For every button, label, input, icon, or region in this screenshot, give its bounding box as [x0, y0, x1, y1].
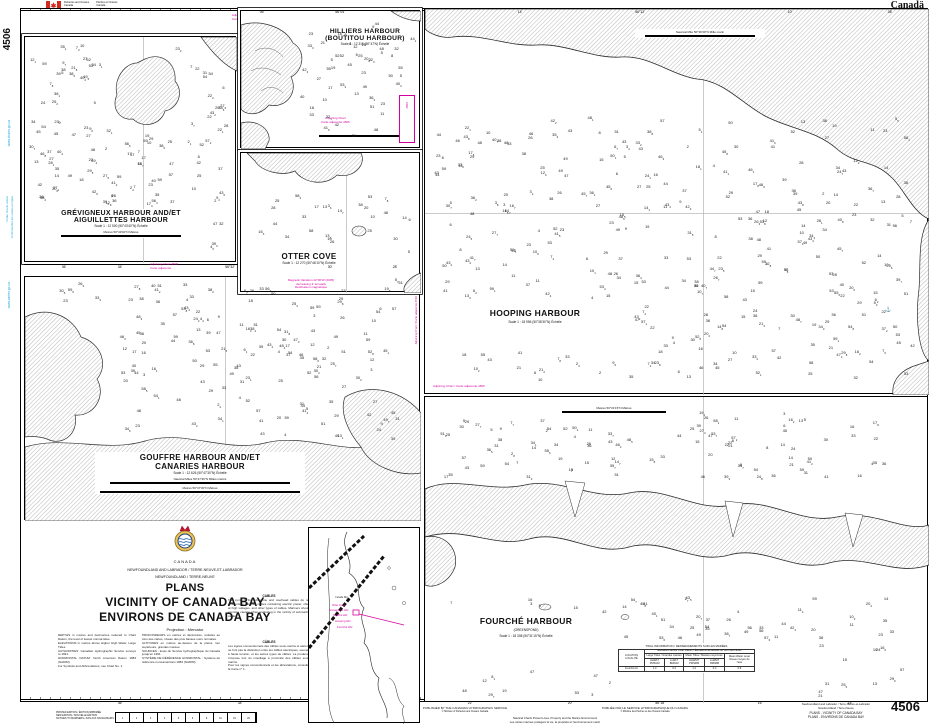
sounding: 53	[896, 333, 900, 337]
side-chart-number: 4506	[2, 28, 13, 50]
sounding: 41	[771, 145, 775, 149]
sounding: 274	[699, 430, 705, 436]
sounding: 13	[475, 267, 479, 271]
sounding: 12	[123, 347, 127, 351]
sounding: 381	[54, 92, 60, 98]
sounding: 53	[904, 372, 908, 376]
sounding: 56	[759, 629, 763, 633]
sounding: 3	[313, 314, 315, 318]
sounding: 27	[728, 358, 732, 362]
sounding: 174	[147, 202, 153, 208]
hooping-scalebar: Nautical Mile 50°36'30"N Mille marin	[635, 29, 765, 38]
sounding: 12	[458, 164, 462, 168]
sounding: 207	[696, 615, 702, 621]
sounding: 25	[690, 626, 694, 630]
sounding: 481	[587, 116, 593, 122]
sounding: 76	[882, 349, 886, 355]
sounding: 22	[195, 67, 199, 71]
sounding: 36	[112, 199, 116, 203]
sounding: 393	[724, 475, 730, 481]
sounding: 39	[782, 178, 786, 182]
sounding: 19	[145, 134, 149, 138]
tide-table-wrap: TIDAL INFORMATION / RENSEIGNEMENTS SUR L…	[617, 643, 756, 673]
sounding: 34	[669, 625, 673, 629]
sounding: 41	[518, 351, 522, 355]
sounding: 59	[42, 62, 46, 66]
sounding: 44	[664, 286, 668, 290]
sounding: 571	[797, 240, 803, 246]
sounding: 12	[310, 343, 314, 347]
sounding: 47	[530, 670, 534, 674]
sounding: 55	[213, 363, 217, 367]
sounding: 27	[342, 385, 346, 389]
sounding: 538	[181, 307, 187, 313]
sounding: 473	[293, 338, 299, 344]
sounding: 497	[383, 418, 389, 424]
sounding: 2	[687, 145, 689, 149]
sounding: 2	[327, 346, 329, 350]
sounding: 22	[881, 310, 885, 314]
sounding: 52	[726, 195, 730, 199]
sounding: 30	[790, 314, 794, 318]
sounding: 48	[384, 211, 388, 215]
sounding: 298	[337, 301, 343, 307]
sounding: 221	[465, 126, 471, 132]
sounding: 28	[224, 124, 228, 128]
sounding: 121	[30, 58, 36, 64]
sounding: 52	[307, 371, 311, 375]
sounding: 13	[323, 205, 327, 209]
sounding: 361	[589, 191, 595, 197]
sounding: 59	[310, 306, 314, 310]
sounding: 4	[591, 296, 593, 300]
sounding: 528	[368, 350, 374, 356]
sounding: 333	[95, 296, 101, 302]
sounding: 22	[874, 437, 878, 441]
projection-note: Projection : Mercator	[60, 627, 310, 632]
tide-table-title: TIDAL INFORMATION / RENSEIGNEMENTS SUR L…	[618, 644, 755, 648]
sounding: 43	[311, 329, 315, 333]
sounding: 37	[191, 122, 195, 128]
sounding: 538	[760, 220, 766, 226]
sounding: 248	[757, 475, 763, 481]
sounding: 423	[685, 205, 691, 211]
graticule-label: 16'	[758, 701, 762, 705]
sounding: 16	[338, 32, 342, 36]
sounding: 72	[647, 362, 651, 368]
sounding: 52	[86, 58, 90, 62]
sounding: 392	[91, 159, 97, 165]
sounding: 23	[341, 289, 345, 293]
cables-note-fr: CÂBLES Les signes conventionnels des câb…	[228, 640, 310, 672]
sounding: 29	[729, 191, 733, 195]
sounding: 22	[644, 305, 648, 309]
graticule-label: 56°32'	[225, 265, 235, 269]
sounding: 393	[212, 242, 218, 248]
sounding: 386	[159, 145, 165, 151]
sounding: 15	[606, 294, 610, 298]
sounding: 44	[677, 434, 681, 438]
sounding: 412	[154, 289, 160, 295]
sounding: 36	[831, 313, 835, 317]
sounding: 318	[284, 331, 290, 337]
sounding: 416	[770, 139, 776, 145]
sounding: 30	[824, 438, 828, 442]
sounding: 59	[800, 468, 804, 472]
sounding: 363	[369, 96, 375, 102]
sounding: 34	[554, 443, 558, 447]
sounding: 9	[539, 604, 541, 608]
sounding: 5	[901, 214, 903, 218]
sounding: 59	[284, 416, 288, 420]
sounding: 4	[239, 396, 241, 400]
sounding: 7	[778, 327, 780, 331]
published-fr: PUBLIÉE PAR LE SERVICE HYDROGRAPHIQUE DU…	[560, 706, 730, 713]
sounding: 47	[169, 162, 173, 166]
sounding: 21	[789, 463, 793, 467]
sounding: 53	[206, 349, 210, 353]
sounding: 18	[79, 178, 83, 182]
sounding: 36	[328, 204, 332, 210]
sounding: 67	[244, 289, 248, 295]
web-url-en: www.charts.gc.ca	[7, 120, 11, 146]
sounding: 432	[446, 261, 452, 267]
scale-bar	[110, 482, 290, 484]
sounding: 51	[341, 350, 345, 354]
sounding: 11	[734, 417, 738, 421]
sounding: 55	[895, 117, 899, 123]
sounding: 412	[807, 460, 813, 466]
sounding: 347	[738, 464, 744, 470]
sounding: 29	[825, 320, 829, 324]
sounding: 198	[384, 287, 390, 293]
sounding: 26	[528, 136, 532, 140]
sounding: 411	[723, 170, 729, 176]
sounding: 18	[658, 350, 662, 354]
sounding: 33	[259, 287, 263, 291]
sounding: 32	[853, 376, 857, 380]
published-en: PUBLISHED BY THE CANADIAN HYDROGRAPHIC S…	[380, 706, 550, 713]
sounding: 39	[259, 345, 263, 349]
sounding: 51	[398, 281, 402, 285]
sounding: 35	[160, 322, 164, 326]
sounding: 45	[347, 63, 351, 67]
sounding: 44	[200, 317, 204, 323]
sounding: 50	[816, 255, 820, 259]
sounding: 103	[849, 616, 855, 622]
sounding: 20	[811, 628, 815, 632]
sounding: 33	[663, 344, 667, 348]
sounding: 53	[687, 257, 691, 261]
sounding: 7	[910, 220, 912, 224]
sounding: 485	[627, 438, 633, 444]
sounding: 29	[757, 254, 761, 258]
sounding: 2	[105, 147, 107, 151]
sounding: 20	[364, 206, 368, 210]
sounding: 36	[819, 636, 823, 640]
sounding: 388	[647, 130, 653, 136]
sounding: 37	[682, 189, 686, 193]
sounding: 20	[708, 453, 712, 457]
sounding: 15	[599, 158, 603, 162]
sounding: 40	[300, 95, 304, 99]
title-plans: PLANS	[60, 582, 310, 594]
sounding: 38	[822, 119, 826, 123]
panel-hooping-harbour: HOOPING HARBOUR Scale 1 : 18 956 (50°36'…	[424, 8, 928, 394]
sounding: 23	[381, 102, 385, 106]
sounding: 382	[208, 288, 214, 294]
sounding: 17	[285, 344, 289, 348]
sounding: 5	[400, 74, 402, 78]
sounding: 367	[868, 187, 874, 193]
sounding: 31	[240, 380, 244, 384]
sounding: 50	[728, 121, 732, 125]
sounding: 3	[503, 203, 505, 207]
sounding: 58	[809, 361, 813, 365]
sounding: 458	[640, 603, 646, 609]
sounding: 31	[494, 444, 498, 448]
sounding: 20	[504, 193, 508, 197]
index-water-label: Canada Bay	[335, 596, 348, 599]
sounding: 10	[486, 131, 490, 135]
sounding: 441	[410, 37, 416, 43]
sounding: 14	[884, 166, 888, 170]
sounding: 22	[217, 404, 221, 410]
sounding: 45	[715, 366, 719, 370]
sounding: 48	[91, 148, 95, 152]
sounding: 30	[282, 338, 286, 342]
sounding: 341	[218, 417, 224, 423]
sounding: 27	[373, 400, 377, 404]
sounding: 54	[208, 72, 212, 76]
sounding: 14	[402, 216, 406, 220]
sounding: 23	[819, 644, 823, 648]
sounding: 14	[622, 605, 626, 609]
depth-cell: 4	[158, 713, 172, 722]
sounding: 51	[614, 130, 618, 134]
sounding: 2	[546, 429, 548, 433]
sounding: 31	[395, 417, 399, 421]
sounding: 78	[49, 82, 53, 88]
sounding: 37	[286, 353, 290, 357]
sounding: 42	[367, 413, 371, 417]
sounding: 36	[771, 474, 775, 478]
sounding: 27	[86, 134, 90, 138]
sounding: 23	[436, 154, 440, 158]
sounding: 386	[218, 106, 224, 112]
sounding: 58	[724, 295, 728, 299]
sounding: 97	[62, 62, 66, 68]
sounding: 25	[275, 199, 279, 203]
sounding: 4	[574, 435, 576, 439]
sounding: 13	[799, 419, 803, 423]
sounding: 55	[398, 66, 402, 70]
sounding: 17	[314, 205, 318, 209]
sounding: 47	[72, 133, 76, 137]
sounding: 10	[80, 44, 84, 48]
sounding: 23	[526, 243, 530, 247]
slogan-fr: Les cartes marines protègent la vie, la …	[405, 720, 705, 724]
sounding: 464	[615, 443, 621, 449]
sounding: 23	[852, 213, 856, 217]
sounding: 5	[450, 201, 452, 205]
sounding: 12	[353, 45, 357, 49]
sounding: 438	[463, 135, 469, 141]
sounding: 9	[380, 422, 382, 426]
sounding: 27	[317, 77, 321, 81]
sounding: 37	[618, 257, 622, 261]
sounding: 254	[292, 302, 298, 308]
graticule-label: 30'	[328, 265, 332, 269]
sounding: 487	[796, 318, 802, 324]
sounding: 596	[68, 288, 74, 294]
sounding: 422	[550, 119, 556, 125]
sounding: 17	[328, 86, 332, 90]
sounding: 2	[822, 192, 824, 196]
sounding: 22	[250, 353, 254, 357]
sounding: 53	[121, 371, 125, 375]
sounding: 24	[41, 101, 45, 105]
sounding: 57	[392, 307, 396, 311]
sounding: 26	[39, 195, 43, 199]
sounding: 4	[737, 610, 739, 614]
sounding: 53	[575, 691, 579, 695]
sounding: 3	[783, 412, 785, 416]
sounding: 9	[58, 121, 60, 125]
sounding: 11	[511, 274, 515, 278]
sounding: 48	[462, 689, 466, 693]
sounding: 528	[695, 335, 701, 341]
index-label: Otter Cove	[332, 604, 346, 607]
sounding: 6	[442, 156, 444, 160]
sounding: 44	[437, 133, 441, 137]
sounding: 10	[370, 215, 374, 219]
sounding: 11	[380, 112, 384, 116]
sounding: 32	[870, 218, 874, 222]
sounding: 47	[708, 434, 712, 438]
title-province: NEWFOUNDLAND AND LABRADOR / TERRE-NEUVE-…	[60, 568, 310, 572]
sounding: 10	[538, 378, 542, 382]
sounding: 556	[544, 449, 550, 455]
sounding: 247	[837, 170, 843, 176]
sounding: 50	[388, 74, 392, 78]
sounding: 59	[758, 281, 762, 285]
sounding: 50	[192, 359, 196, 363]
sounding: 14	[780, 443, 784, 447]
sounding: 19	[502, 689, 506, 693]
sounding: 13	[801, 120, 805, 124]
sounding: 49	[616, 228, 620, 232]
sounding: 52	[199, 143, 203, 147]
sounding: 222	[208, 94, 214, 100]
sounding: 404	[57, 150, 63, 156]
index-label: Fourché Hbr	[337, 626, 353, 629]
graticule-label: 08'	[888, 10, 892, 14]
title-gouffre: GOUFFRE HARBOUR AND/ET CANARIES HARBOUR …	[95, 452, 305, 494]
scale-bar	[319, 135, 399, 137]
sounding: 8	[598, 131, 600, 135]
sounding: 21	[517, 366, 521, 370]
sounding: 62	[473, 289, 477, 295]
sounding: 486	[619, 215, 625, 221]
sounding: 307	[29, 145, 35, 151]
depth-cell: 5	[172, 713, 186, 722]
sounding: 24	[130, 186, 134, 192]
sounding: 407	[701, 284, 707, 290]
sounding: 33	[890, 630, 894, 634]
sounding: 38	[234, 366, 238, 370]
sounding: 72	[642, 310, 646, 316]
sounding: 35	[873, 461, 877, 465]
sounding: 533	[340, 83, 346, 89]
sounding: 37	[706, 618, 710, 622]
sounding: 45	[896, 341, 900, 345]
sounding: 51	[253, 323, 257, 327]
sounding: 46	[504, 141, 508, 145]
sounding: 28	[896, 195, 900, 199]
sounding: 38	[139, 297, 143, 301]
graticule-label: 10'	[788, 10, 792, 14]
graticule-label: 34'	[118, 265, 122, 269]
sounding: 39	[56, 72, 60, 76]
sounding: 42	[335, 123, 339, 127]
sounding: 54	[754, 468, 758, 472]
sounding: 181	[696, 166, 702, 172]
sounding: 586	[313, 357, 319, 363]
sounding: 37	[47, 150, 51, 154]
sounding: 271	[53, 186, 59, 192]
sounding: 17	[444, 475, 448, 479]
sounding: 8	[459, 248, 461, 252]
sounding: 14	[801, 224, 805, 228]
sounding: 461	[748, 169, 754, 175]
sounding: 16	[698, 347, 702, 351]
sounding: 423	[302, 68, 308, 74]
sounding: 346	[125, 427, 131, 433]
sounding: 51	[321, 422, 325, 426]
sounding: 35	[629, 375, 633, 379]
sounding: 44	[663, 182, 667, 186]
sounding: 57	[169, 173, 173, 177]
sounding: 35	[55, 167, 59, 171]
sounding: 368	[188, 340, 194, 346]
sounding: 52	[862, 261, 866, 265]
sounding: 8	[349, 42, 351, 46]
sounding: 25	[367, 229, 371, 233]
sounding: 33	[309, 113, 313, 117]
sounding: 362	[471, 196, 477, 202]
sounding: 23	[128, 298, 132, 302]
sounding: 458	[722, 150, 728, 156]
sounding: 36	[706, 319, 710, 323]
sounding: 432	[465, 260, 471, 266]
sounding: 536	[659, 636, 665, 642]
chart-notes-en: DEPTHS in metres and decimetres reduced …	[58, 634, 136, 669]
sounding: 25	[446, 433, 450, 437]
sounding: 50	[808, 457, 812, 461]
sounding: 57	[256, 409, 260, 413]
sounding: 281	[48, 161, 54, 167]
sounding: 21	[321, 41, 325, 45]
sounding: 45	[624, 635, 628, 639]
sounding: 4	[186, 298, 188, 302]
sounding: 13	[873, 682, 877, 686]
sounding: 277	[492, 231, 498, 237]
sounding: 23	[84, 126, 88, 130]
sounding: 35	[810, 343, 814, 347]
sounding: 296	[890, 677, 896, 683]
sounding: 5	[61, 71, 63, 75]
